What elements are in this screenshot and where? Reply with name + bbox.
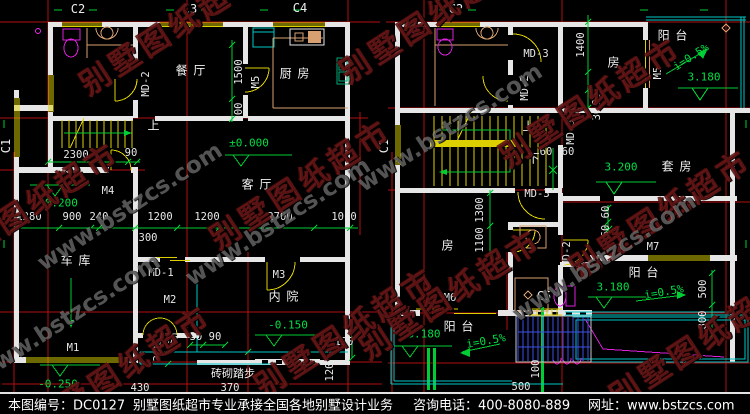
dimension-label: 300 (152, 343, 164, 362)
dimension-label: 240 (90, 211, 109, 223)
level-label: -0.150 (268, 319, 308, 332)
level-label: ±0.000 (229, 137, 269, 150)
room-label: 下 (527, 150, 540, 167)
level-label: -0.200 (38, 197, 78, 210)
plan-labels-layer: C2C3C4C1MD-2餐 厅M51500300厨 房上230090±0.000… (0, 0, 750, 392)
dimension-label: 120 (335, 336, 354, 348)
door-label: M6 (444, 292, 457, 304)
dimension-label: 90 (125, 147, 138, 159)
service-slogan: 别墅图纸超市专业承接全国各地别墅设计业务 (133, 395, 393, 414)
door-label: M2 (164, 294, 177, 306)
door-label: MD-3 (524, 188, 549, 200)
dimension-label: 120 (324, 363, 336, 382)
dimension-label: 1100 (474, 227, 486, 252)
level-label: 3.200 (604, 161, 637, 174)
door-label: MD-3 (523, 48, 548, 60)
cad-floorplan-screenshot: C2C3C4C1MD-2餐 厅M51500300厨 房上230090±0.000… (0, 0, 750, 414)
dimension-label: 1200 (194, 211, 219, 223)
axis-label: C4 (293, 1, 307, 15)
door-label: MD-2 (519, 75, 531, 100)
note-label: 砖砌踏步 (211, 365, 255, 381)
phone-number: 咨询电话：400-8080-889 (413, 395, 570, 414)
dimension-label: 1010 (331, 211, 356, 223)
axis-label: C1 (377, 139, 391, 153)
dimension-label: 30 (190, 331, 203, 343)
room-label: 阳 台 (629, 264, 660, 281)
door-label: MD-3 (565, 119, 577, 144)
room-label: 套 房 (662, 158, 693, 175)
level-label: 3.180 (687, 71, 720, 84)
room-label: 房 (441, 237, 454, 254)
room-label: 车 库 (61, 252, 92, 269)
axis-label: C2 (71, 2, 85, 16)
level-label: 3.180 (407, 328, 440, 341)
axis-label: C1 (0, 139, 13, 153)
dimension-label: 90 (591, 93, 603, 106)
room-label: 餐 厅 (176, 62, 207, 79)
dimension-label: 500 (697, 280, 709, 299)
dimension-label: 1280 (16, 211, 41, 223)
door-label: M4 (102, 185, 115, 197)
door-label: M3 (273, 269, 286, 281)
slope-label: i=0.5% (671, 41, 711, 74)
axis-label: C5 (537, 289, 551, 303)
room-label: 厨 房 (280, 65, 311, 82)
dimension-label: 90 (209, 331, 222, 343)
dimension-label: 2300 (63, 149, 88, 161)
room-label: 阳 台 (444, 318, 475, 335)
door-label: MD-1 (148, 267, 173, 279)
dimension-label: 60 (600, 206, 612, 219)
room-label: 内 院 (269, 288, 300, 305)
dimension-label: 1500 (233, 59, 245, 84)
dimension-label: 900 (63, 211, 82, 223)
axis-label: C3 (183, 2, 197, 16)
slope-label: i=0.5% (643, 282, 684, 302)
door-label: M1 (67, 342, 80, 354)
dimension-label: 300 (233, 103, 245, 122)
dimension-label: 300 (139, 232, 158, 244)
dimension-label: 30 (591, 108, 603, 121)
room-label: 房 (607, 54, 620, 71)
dimension-label: 1300 (474, 197, 486, 222)
dimension-label: 1200 (147, 211, 172, 223)
door-label: MD-2 (140, 71, 152, 96)
drawing-number: 本图编号：DC0127 (8, 395, 125, 414)
dimension-label: 60 (600, 225, 612, 238)
dimension-label: 800 (697, 311, 709, 330)
dimension-label: 2700 (267, 211, 292, 223)
door-label: M7 (647, 241, 660, 253)
level-label: 3.180 (596, 281, 629, 294)
room-label: 客 厅 (242, 176, 273, 193)
dimension-label: 1400 (575, 32, 587, 57)
room-label: 上 (522, 118, 535, 135)
axis-label: C2 (449, 2, 463, 16)
room-label: 阳 台 (658, 27, 689, 44)
door-label: M5 (652, 67, 664, 80)
footer-bar: 本图编号：DC0127 别墅图纸超市专业承接全国各地别墅设计业务 咨询电话：40… (0, 392, 750, 414)
dimension-label: 60 (562, 146, 575, 158)
room-label: 上 (147, 117, 160, 134)
door-label: M5 (250, 76, 262, 89)
website-url: 网址：www.bstzcs.com (588, 395, 735, 414)
level-label: -0.250 (38, 378, 78, 391)
dimension-label: 60 (540, 146, 553, 158)
dimension-label: 100 (530, 360, 542, 379)
door-label: MD-2 (561, 241, 573, 266)
